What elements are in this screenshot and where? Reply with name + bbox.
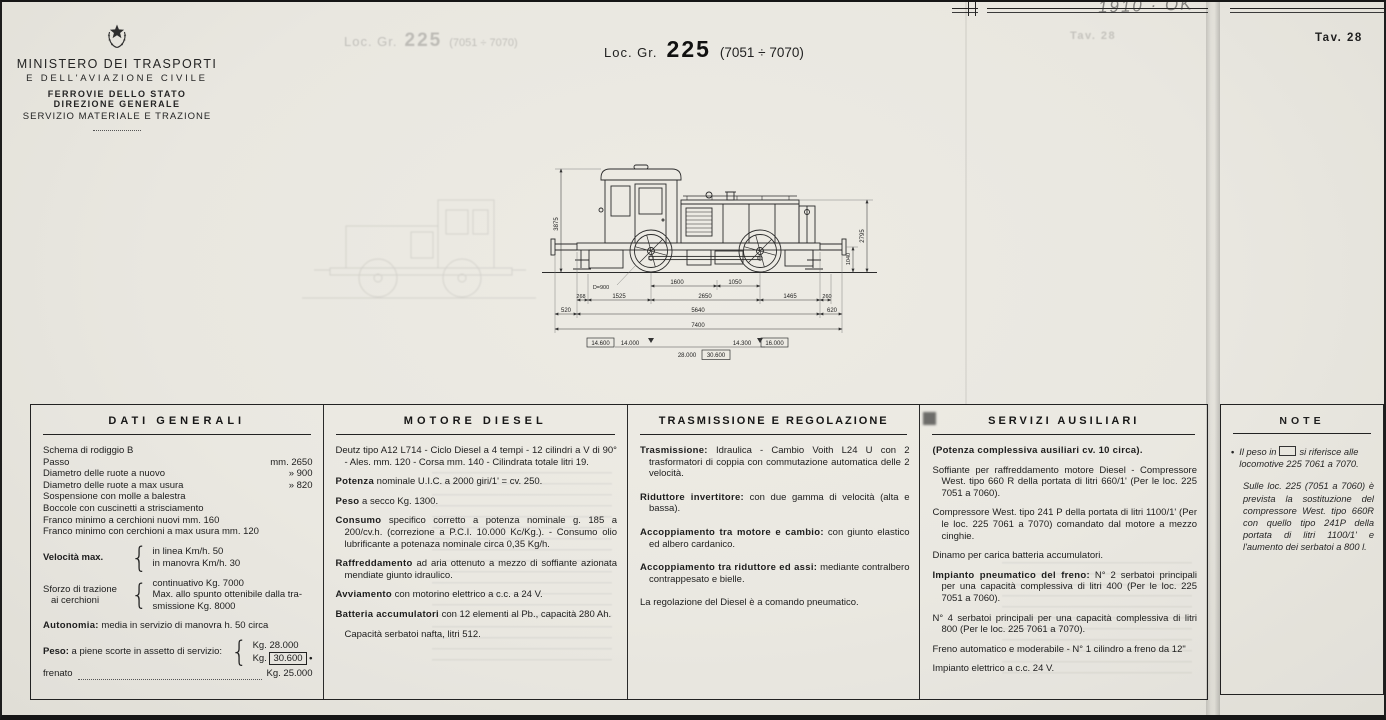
spec-line: Boccole con cuscinetti a strisciamento [43, 503, 313, 515]
paragraph: (Potenza complessiva ausiliari cv. 10 ci… [932, 445, 1197, 457]
velocita-block: Velocità max. { in linea Km/h. 50 in man… [43, 545, 313, 571]
plate-number-label: Tav. 28 [1315, 32, 1363, 44]
spec-label: Diametro delle ruote a max usura [43, 480, 183, 492]
velocita-manovra: in manovra Km/h. 30 [153, 558, 313, 570]
spec-line: Franco minimo a cerchioni nuovi mm. 160 [43, 515, 313, 527]
peso-text: a piene scorte in assetto di servizio: [72, 646, 223, 657]
bleedthrough-locomotive-drawing [298, 168, 540, 320]
text: Impianto elettrico a c.c. 24 V. [932, 663, 1054, 674]
sforzo-label-1: Sforzo di trazione [43, 584, 129, 596]
note-paragraph-2: Sulle loc. 225 (7051 a 7060) è prevista … [1243, 480, 1374, 553]
dim-520: 520 [561, 308, 572, 314]
text: nominale U.I.C. a 2000 giri/1' = cv. 250… [377, 476, 543, 487]
lead: Impianto pneumatico del freno: [932, 570, 1089, 581]
ink-smudge [923, 412, 936, 425]
paragraph: Peso a secco Kg. 1300. [336, 496, 617, 508]
text: Dinamo per carica batteria accumulatori. [932, 550, 1103, 561]
spec-value: mm. 2650 [270, 457, 312, 469]
note-body: • Il peso insi riferisce alle locomotive… [1221, 434, 1383, 554]
text: Capacità serbatoi nafta, litri 512. [345, 629, 481, 640]
lead: Raffreddamento [336, 558, 413, 569]
spec-value: » 900 [289, 468, 313, 480]
dim-620: 620 [827, 308, 838, 314]
velocita-values: in linea Km/h. 50 in manovra Km/h. 30 [153, 546, 313, 569]
dim-7400: 7400 [691, 323, 705, 329]
brace-glyph: { [131, 543, 148, 572]
specification-table: DATI GENERALI Schema di rodiggio B Passo… [30, 404, 1208, 700]
lead: Trasmissione: [640, 445, 708, 456]
dotted-rule [93, 128, 141, 131]
note-text-pre: Il peso in [1239, 447, 1276, 457]
paragraph: Impianto elettrico a c.c. 24 V. [932, 663, 1197, 675]
ministry-line-4: DIREZIONE GENERALE [8, 99, 226, 109]
footnote-marker: • [309, 653, 312, 664]
box-symbol [1279, 446, 1296, 456]
paragraph: Raffreddamento ad aria ottenuto a mezzo … [336, 558, 617, 581]
ghost-title-prefix: Loc. Gr. [344, 34, 398, 49]
locomotive-body [542, 165, 877, 273]
dotted-leader [78, 671, 262, 680]
column-header: MOTORE DIESEL [324, 405, 627, 435]
axle-load-boxed-front: 14.600 [591, 341, 610, 347]
sforzo-massimo: Max. allo spunto ottenibile dalla tra-sm… [153, 589, 313, 612]
dim-2650: 2650 [698, 294, 712, 300]
note-text-1: Il peso insi riferisce alle locomotive 2… [1239, 446, 1374, 470]
dim-1600: 1600 [670, 280, 684, 286]
dim-height-total: 3875 [554, 217, 560, 231]
text: Deutz tipo A12 L714 - Ciclo Diesel a 4 t… [336, 445, 617, 468]
paragraph: Capacità serbatoi nafta, litri 512. [336, 629, 617, 641]
spec-line: Franco minimo con cerchioni a max usura … [43, 526, 313, 538]
total-weight-boxed: 30.600 [707, 353, 726, 359]
paragraph: Accoppiamento tra riduttore ed assi: med… [640, 562, 910, 585]
handwritten-annotation: 1910 · OK [1098, 0, 1194, 18]
ghost-title-range: (7051 ÷ 7070) [449, 37, 517, 49]
column-header: DATI GENERALI [31, 405, 323, 435]
column-body: Trasmissione: Idraulica - Cambio Voith L… [628, 435, 920, 609]
footnote-marker: • [1231, 446, 1234, 470]
title-range: (7051 ÷ 7070) [720, 45, 804, 60]
spec-label: Diametro delle ruote a nuovo [43, 468, 165, 480]
column-header: TRASMISSIONE E REGOLAZIONE [628, 405, 920, 435]
page-title: Loc. Gr. 225 (7051 ÷ 7070) [604, 36, 804, 63]
sforzo-block: Sforzo di trazione ai cerchioni { contin… [43, 578, 313, 613]
dim-buffer-height: 1040 [846, 253, 852, 265]
spec-row: Passo mm. 2650 [43, 457, 313, 469]
spec-line: Sospensione con molle a balestra [43, 491, 313, 503]
total-weight: 28.000 [678, 353, 697, 359]
note-panel: NOTE • Il peso insi riferisce alle locom… [1220, 404, 1384, 695]
column-body: Schema di rodiggio B Passo mm. 2650 Diam… [31, 435, 323, 680]
lead: Batteria accumulatori [336, 609, 439, 620]
peso-value-1: Kg. 28.000 [253, 640, 313, 652]
scan-rule-right [1230, 8, 1384, 13]
column-servizi-ausiliari: SERVIZI AUSILIARI (Potenza complessiva a… [919, 405, 1207, 699]
column-header: SERVIZI AUSILIARI [920, 405, 1207, 435]
sforzo-values: continuativo Kg. 7000 Max. allo spunto o… [153, 578, 313, 613]
text: Compressore West. tipo 241 P della porta… [932, 507, 1197, 541]
bleedthrough-tav-label: Tav. 28 [1070, 30, 1116, 42]
text: a secco Kg. 1300. [362, 496, 438, 507]
page-seam [1206, 2, 1220, 720]
frenato-row: frenato Kg. 25.000 [43, 668, 313, 680]
autonomia-line: Autonomia: media in servizio di manovra … [43, 620, 313, 632]
lead: Accoppiamento tra motore e cambio: [640, 527, 824, 538]
paragraph: Dinamo per carica batteria accumulatori. [932, 550, 1197, 562]
axle-load-front: 14.000 [621, 341, 640, 347]
spec-row: Diametro delle ruote a max usura » 820 [43, 480, 313, 492]
paragraph: N° 4 serbatoi principali per una capacit… [932, 613, 1197, 636]
peso-lead: Peso: [43, 646, 69, 657]
paragraph: Compressore West. tipo 241 P della porta… [932, 507, 1197, 542]
note-paragraph-1: • Il peso insi riferisce alle locomotive… [1231, 446, 1374, 470]
dim-5640: 5640 [691, 308, 705, 314]
text: con 12 elementi al Pb., capacità 280 Ah. [442, 609, 612, 620]
velocita-linea: in linea Km/h. 50 [153, 546, 313, 558]
sforzo-continuativo: continuativo Kg. 7000 [153, 578, 313, 590]
paragraph: Consumo specifico corretto a potenza nom… [336, 515, 617, 550]
column-dati-generali: DATI GENERALI Schema di rodiggio B Passo… [31, 405, 323, 699]
paragraph: Riduttore invertitore: con due gamma di … [640, 492, 910, 515]
peso-block: Peso: a piene scorte in assetto di servi… [43, 639, 313, 665]
peso-label: Peso: a piene scorte in assetto di servi… [43, 646, 229, 658]
sforzo-label-2: ai cerchioni [43, 595, 129, 607]
ministry-line-3: FERROVIE DELLO STATO [8, 89, 226, 99]
text: Soffiante per raffreddamento motore Dies… [932, 465, 1197, 499]
paragraph: Impianto pneumatico del freno: N° 2 serb… [932, 570, 1197, 605]
paragraph: Batteria accumulatori con 12 elementi al… [336, 609, 617, 621]
ministry-line-5: SERVIZIO MATERIALE E TRAZIONE [8, 111, 226, 122]
spec-row: Diametro delle ruote a nuovo » 900 [43, 468, 313, 480]
autonomia-text: media in servizio di manovra h. 50 circa [101, 620, 268, 631]
dim-height-hood: 2795 [860, 229, 866, 243]
frenato-value: Kg. 25.000 [267, 668, 313, 680]
dim-268: 268 [576, 294, 585, 300]
lead: Potenza [336, 476, 375, 487]
column-body: (Potenza complessiva ausiliari cv. 10 ci… [920, 435, 1207, 675]
lead: Accoppiamento tra riduttore ed assi: [640, 562, 817, 573]
lead: Peso [336, 496, 360, 507]
lead: Riduttore invertitore: [640, 492, 744, 503]
bleedthrough-title: Loc. Gr. 225 (7051 ÷ 7070) [344, 30, 518, 52]
lead: (Potenza complessiva ausiliari cv. 10 ci… [932, 445, 1142, 456]
peso-value-2: Kg. 30.600 • [253, 653, 313, 665]
dim-1050: 1050 [728, 280, 742, 286]
velocita-label: Velocità max. [43, 552, 129, 564]
text: con motorino elettrico a c.c. a 24 V. [395, 589, 543, 600]
state-emblem-icon [105, 22, 129, 49]
ministry-line-2: E DELL'AVIAZIONE CIVILE [8, 73, 226, 84]
column-motore-diesel: MOTORE DIESEL Deutz tipo A12 L714 - Cicl… [323, 405, 627, 699]
note-header: NOTE [1221, 405, 1383, 434]
peso-value-boxed: 30.600 [269, 652, 306, 665]
peso-values: Kg. 28.000 Kg. 30.600 • [253, 639, 313, 665]
frenato-label: frenato [43, 668, 73, 680]
title-prefix: Loc. Gr. [604, 45, 658, 60]
text: Freno automatico e moderabile - N° 1 cil… [932, 644, 1185, 655]
paragraph: Deutz tipo A12 L714 - Ciclo Diesel a 4 t… [336, 445, 617, 468]
paragraph: La regolazione del Diesel è a comando pn… [640, 597, 910, 609]
dim-1525: 1525 [612, 294, 626, 300]
spec-line: Schema di rodiggio B [43, 445, 313, 457]
spec-label: Passo [43, 457, 69, 469]
ministry-header: MINISTERO DEI TRASPORTI E DELL'AVIAZIONE… [8, 22, 226, 131]
scanned-datasheet-page: 1910 · OK MINISTERO DEI TRASPORTI E DELL… [0, 0, 1386, 720]
dim-wheel-diameter: D=900 [593, 285, 609, 291]
dim-1465: 1465 [783, 294, 797, 300]
paragraph: Avviamento con motorino elettrico a c.c.… [336, 589, 617, 601]
axle-load-rear: 14.300 [733, 341, 752, 347]
dim-260: 260 [822, 294, 831, 300]
spec-value: » 820 [289, 480, 313, 492]
column-body: Deutz tipo A12 L714 - Ciclo Diesel a 4 t… [324, 435, 627, 640]
brace-glyph: { [231, 638, 248, 667]
paragraph: Soffiante per raffreddamento motore Dies… [932, 465, 1197, 500]
lead: Consumo [336, 515, 382, 526]
ministry-line-1: MINISTERO DEI TRASPORTI [8, 57, 226, 71]
ghost-title-number: 225 [405, 30, 443, 52]
dimension-extension-lines [555, 169, 873, 333]
paragraph: Trasmissione: Idraulica - Cambio Voith L… [640, 445, 910, 480]
locomotive-drawing: 3875 2795 1040 D=900 1600 1050 268 1525 … [537, 148, 882, 368]
axle-load-boxed-rear: 16.000 [765, 341, 784, 347]
sforzo-label: Sforzo di trazione ai cerchioni [43, 584, 129, 607]
paragraph: Freno automatico e moderabile - N° 1 cil… [932, 644, 1197, 656]
text: La regolazione del Diesel è a comando pn… [640, 597, 859, 608]
text: N° 4 serbatoi principali per una capacit… [932, 613, 1197, 636]
title-number: 225 [667, 36, 711, 63]
paper-crease [965, 2, 967, 404]
autonomia-lead: Autonomia: [43, 620, 99, 631]
brace-glyph: { [131, 581, 148, 610]
binding-tick [968, 2, 976, 16]
text: specifico corretto a potenza nominale g.… [345, 515, 618, 549]
peso-unit: Kg. [253, 653, 267, 664]
paragraph: Potenza nominale U.I.C. a 2000 giri/1' =… [336, 476, 617, 488]
paragraph: Accoppiamento tra motore e cambio: con g… [640, 527, 910, 550]
column-trasmissione: TRASMISSIONE E REGOLAZIONE Trasmissione:… [627, 405, 920, 699]
lead: Avviamento [336, 589, 393, 600]
